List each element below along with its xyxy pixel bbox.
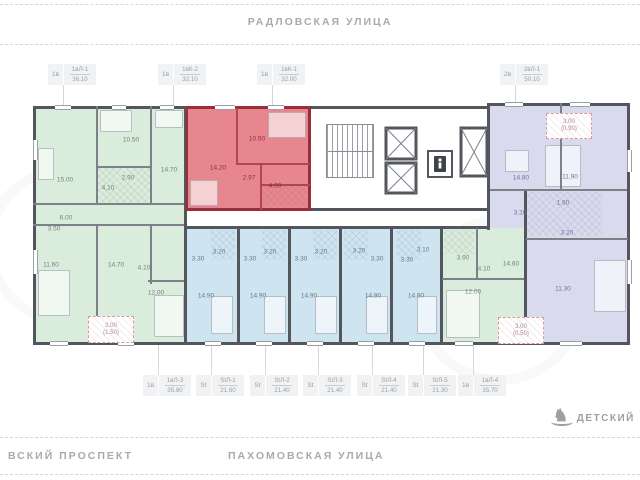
partition-wall	[150, 226, 152, 284]
apartment-tag-1вК-1[interactable]: 1в 1вК-1 32.00	[257, 64, 305, 85]
wall	[390, 228, 393, 342]
window	[560, 341, 582, 346]
furniture	[38, 270, 70, 316]
apartment-type: 2в	[500, 64, 515, 85]
window	[256, 341, 272, 346]
apartment-type: St	[408, 375, 423, 396]
apartment-type: 1в	[143, 375, 158, 396]
selected-apartment-wall	[308, 106, 311, 211]
apartment-tag-1вЛ-3[interactable]: 1в 1вЛ-3 35.80	[143, 375, 191, 396]
window	[33, 250, 38, 274]
wall	[308, 106, 490, 109]
furniture	[155, 110, 183, 128]
furniture	[154, 295, 184, 337]
window	[160, 105, 174, 110]
room-area-label: 14.70	[108, 262, 124, 269]
wall	[288, 228, 291, 342]
apartment-tag-StЛ-3[interactable]: St StЛ-3 21.40	[303, 375, 351, 396]
selected-apartment-wall	[236, 163, 310, 165]
balcony-area: 3.00	[105, 323, 117, 330]
street-label-bottom-center: ПАХОМОВСКАЯ УЛИЦА	[228, 450, 384, 462]
room-area-label: 4.10	[478, 266, 491, 273]
window	[627, 260, 632, 284]
tag-leader-line	[473, 345, 474, 375]
balcony: 3.00 (0.90)	[546, 113, 592, 139]
balcony: 3.00 (0.50)	[498, 317, 544, 344]
bathroom-tiles	[444, 230, 474, 254]
apartment-tag-1вЛ-4[interactable]: 1в 1вЛ-4 35.70	[458, 375, 506, 396]
room-area-label: 2.97	[243, 175, 256, 182]
room-area-label: 3.10	[417, 247, 430, 254]
apartment-tag-2вЛ-1[interactable]: 2в 2вЛ-1 50.10	[500, 64, 548, 85]
apartment-code: 2вЛ-1	[522, 66, 542, 75]
apartment-area: 21.40	[327, 387, 342, 394]
floor-plan-page: РАДЛОВСКАЯ УЛИЦА ВСКИЙ ПРОСПЕКТ ПАХОМОВС…	[0, 0, 640, 480]
tag-leader-line	[63, 85, 64, 106]
apartment-tag-StЛ-5[interactable]: St StЛ-5 21.30	[408, 375, 456, 396]
apartment-code: StЛ-2	[272, 377, 291, 386]
wc-room	[428, 151, 452, 177]
wall	[308, 208, 490, 211]
furniture	[315, 296, 337, 334]
room-area-label: 3.20	[264, 249, 277, 256]
apartment-type: 1в	[158, 64, 173, 85]
partition-wall	[150, 106, 152, 205]
apartment-tag-1вК-2[interactable]: 1в 1вК-2 32.10	[158, 64, 206, 85]
furniture	[505, 150, 529, 172]
wall	[627, 103, 630, 345]
window	[358, 341, 374, 346]
furniture	[38, 148, 54, 180]
window	[627, 150, 632, 172]
furniture	[264, 296, 286, 334]
apartment-type: St	[303, 375, 318, 396]
poi-kindergarten: ♞ ДЕТСКИЙ	[553, 410, 635, 426]
selected-apartment-wall	[186, 106, 188, 211]
window	[205, 341, 221, 346]
dashed-road-line	[0, 437, 640, 438]
room-area-label: 14.70	[161, 167, 177, 174]
apartment-type: St	[250, 375, 265, 396]
window	[50, 341, 68, 346]
furniture	[446, 290, 480, 338]
apartment-type: 1в	[48, 64, 63, 85]
apartment-area: 50.10	[524, 76, 539, 83]
room-area-label: 14.80	[513, 175, 529, 182]
balcony-area-reduced: (1.50)	[103, 330, 119, 337]
tag-leader-line	[372, 345, 373, 375]
tag-leader-line	[318, 345, 319, 375]
wall	[237, 228, 240, 342]
room-area-label: 3.20	[514, 210, 527, 217]
poi-label: ДЕТСКИЙ	[577, 413, 635, 424]
tag-leader-line	[211, 345, 212, 375]
wall	[440, 228, 443, 345]
apartment-type: St	[357, 375, 372, 396]
apartment-area: 32.00	[281, 76, 296, 83]
bathroom-tiles	[262, 230, 286, 260]
room-area-label: 14.20	[210, 165, 226, 172]
tag-leader-line	[272, 85, 273, 106]
shaft-icon	[461, 128, 487, 176]
apartment-code: StЛ-4	[379, 377, 398, 386]
room-area-label: 4.10	[102, 185, 115, 192]
apartment-code: StЛ-3	[325, 377, 344, 386]
apartment-area: 21.40	[274, 387, 289, 394]
room-area-label: 14.90	[198, 293, 214, 300]
tag-leader-line	[173, 85, 174, 106]
window	[570, 102, 590, 107]
wall	[184, 226, 490, 229]
room-area-label: 3.30	[244, 256, 257, 263]
wall	[339, 228, 342, 342]
partition-wall	[490, 189, 627, 191]
room-area-label: 14.90	[408, 293, 424, 300]
room-area-label: 3.50	[48, 226, 61, 233]
window	[455, 341, 473, 346]
furniture	[545, 145, 581, 187]
room-area-label: 14.90	[301, 293, 317, 300]
room-area-label: 3.30	[192, 256, 205, 263]
apartment-code: 1вЛ-4	[480, 377, 500, 386]
room-area-label: 11.90	[562, 174, 578, 181]
balcony: 3.00 (1.50)	[88, 316, 134, 343]
room-area-label: 11.30	[555, 286, 571, 293]
rocking-horse-icon: ♞	[553, 408, 570, 424]
balcony-area: 3.00	[563, 119, 575, 126]
tag-leader-line	[515, 85, 516, 103]
partition-wall	[526, 238, 628, 240]
room-area-label: 4.00	[269, 183, 282, 190]
selected-apartment-wall	[186, 106, 311, 109]
apartment-code: 1вК-1	[279, 66, 299, 75]
partition-wall	[33, 203, 184, 205]
tag-leader-line	[423, 345, 424, 375]
window	[409, 341, 425, 346]
apartment-tag-1вЛ-1[interactable]: 1в 1вЛ-1 36.10	[48, 64, 96, 85]
furniture	[100, 110, 132, 132]
tag-leader-line	[265, 345, 266, 375]
apartment-type: 1в	[257, 64, 272, 85]
furniture	[417, 296, 437, 334]
partition-wall	[442, 278, 524, 280]
window	[307, 341, 323, 346]
apartment-tag-StЛ-4[interactable]: St StЛ-4 21.40	[357, 375, 405, 396]
furniture	[190, 180, 218, 206]
room-area-label: 15.00	[57, 177, 73, 184]
bathroom-tiles	[313, 230, 337, 260]
bathroom-tiles	[344, 230, 368, 260]
room-area-label: 14.90	[365, 293, 381, 300]
apartment-code: StЛ-1	[218, 377, 237, 386]
selected-apartment-wall	[260, 163, 262, 210]
bathroom-tiles	[397, 230, 421, 260]
street-label-top: РАДЛОВСКАЯ УЛИЦА	[0, 16, 640, 28]
tag-leader-line	[158, 345, 159, 375]
room-area-label: 14.90	[250, 293, 266, 300]
balcony-area: 3.00	[515, 324, 527, 331]
furniture	[268, 112, 306, 138]
partition-wall	[148, 280, 184, 282]
window	[268, 105, 284, 110]
apartment-area: 21.30	[432, 387, 447, 394]
room-area-label: 2.90	[122, 175, 135, 182]
room-area-label: 3.20	[315, 249, 328, 256]
window	[55, 105, 71, 110]
furniture	[366, 296, 388, 334]
apartment-code: 1вК-2	[180, 66, 200, 75]
dashed-road-line	[0, 4, 640, 5]
furniture	[211, 296, 233, 334]
apartment-code: StЛ-5	[430, 377, 449, 386]
room-area-label: 1.60	[557, 200, 570, 207]
stairs	[326, 124, 374, 178]
furniture	[594, 260, 626, 312]
dashed-road-line	[0, 474, 640, 475]
apartment-code: 1вЛ-3	[165, 377, 185, 386]
apartment-code: 1вЛ-1	[70, 66, 90, 75]
room-area-label: 3.30	[295, 256, 308, 263]
apartment-area: 32.10	[182, 76, 197, 83]
room-area-label: 3.30	[401, 257, 414, 264]
room-area-label: 4.10	[138, 265, 151, 272]
room-area-label: 6.00	[60, 215, 73, 222]
window	[112, 105, 126, 110]
apartment-area: 35.80	[167, 387, 182, 394]
room-area-label: 14.60	[503, 261, 519, 268]
room-area-label: 3.20	[353, 248, 366, 255]
window	[33, 140, 38, 160]
selected-apartment-wall	[236, 108, 238, 165]
selected-apartment-wall	[186, 208, 311, 211]
room-area-label: 3.20	[561, 230, 574, 237]
elevator-icon	[386, 163, 416, 193]
partition-wall	[96, 106, 98, 205]
balcony-area-reduced: (0.90)	[561, 126, 577, 133]
apartment-tag-StЛ-1[interactable]: St StЛ-1 21.60	[196, 375, 244, 396]
room-area-label: 11.60	[43, 262, 59, 269]
apartment-area: 36.10	[72, 76, 87, 83]
apartment-area: 21.60	[220, 387, 235, 394]
elevator-icon	[386, 128, 416, 159]
dashed-road-line	[0, 44, 640, 45]
room-area-label: 3.30	[371, 256, 384, 263]
apartment-area: 21.40	[381, 387, 396, 394]
apartment-type: St	[196, 375, 211, 396]
apartment-tag-StЛ-2[interactable]: St StЛ-2 21.40	[250, 375, 298, 396]
window	[505, 102, 523, 107]
balcony-area-reduced: (0.50)	[513, 331, 529, 338]
room-area-label: 12.00	[465, 289, 481, 296]
bathroom-tiles	[211, 230, 235, 260]
room-area-label: 10.50	[249, 136, 265, 143]
room-area-label: 3.20	[213, 249, 226, 256]
room-area-label: 10.50	[123, 137, 139, 144]
street-label-bottom-left: ВСКИЙ ПРОСПЕКТ	[8, 450, 133, 462]
room-area-label: 3.90	[457, 255, 470, 262]
apartment-type: 1в	[458, 375, 473, 396]
partition-wall	[96, 166, 152, 168]
window	[215, 105, 235, 110]
room-area-label: 12.00	[148, 290, 164, 297]
apartment-area: 35.70	[482, 387, 497, 394]
selected-apartment-wall	[260, 184, 310, 186]
